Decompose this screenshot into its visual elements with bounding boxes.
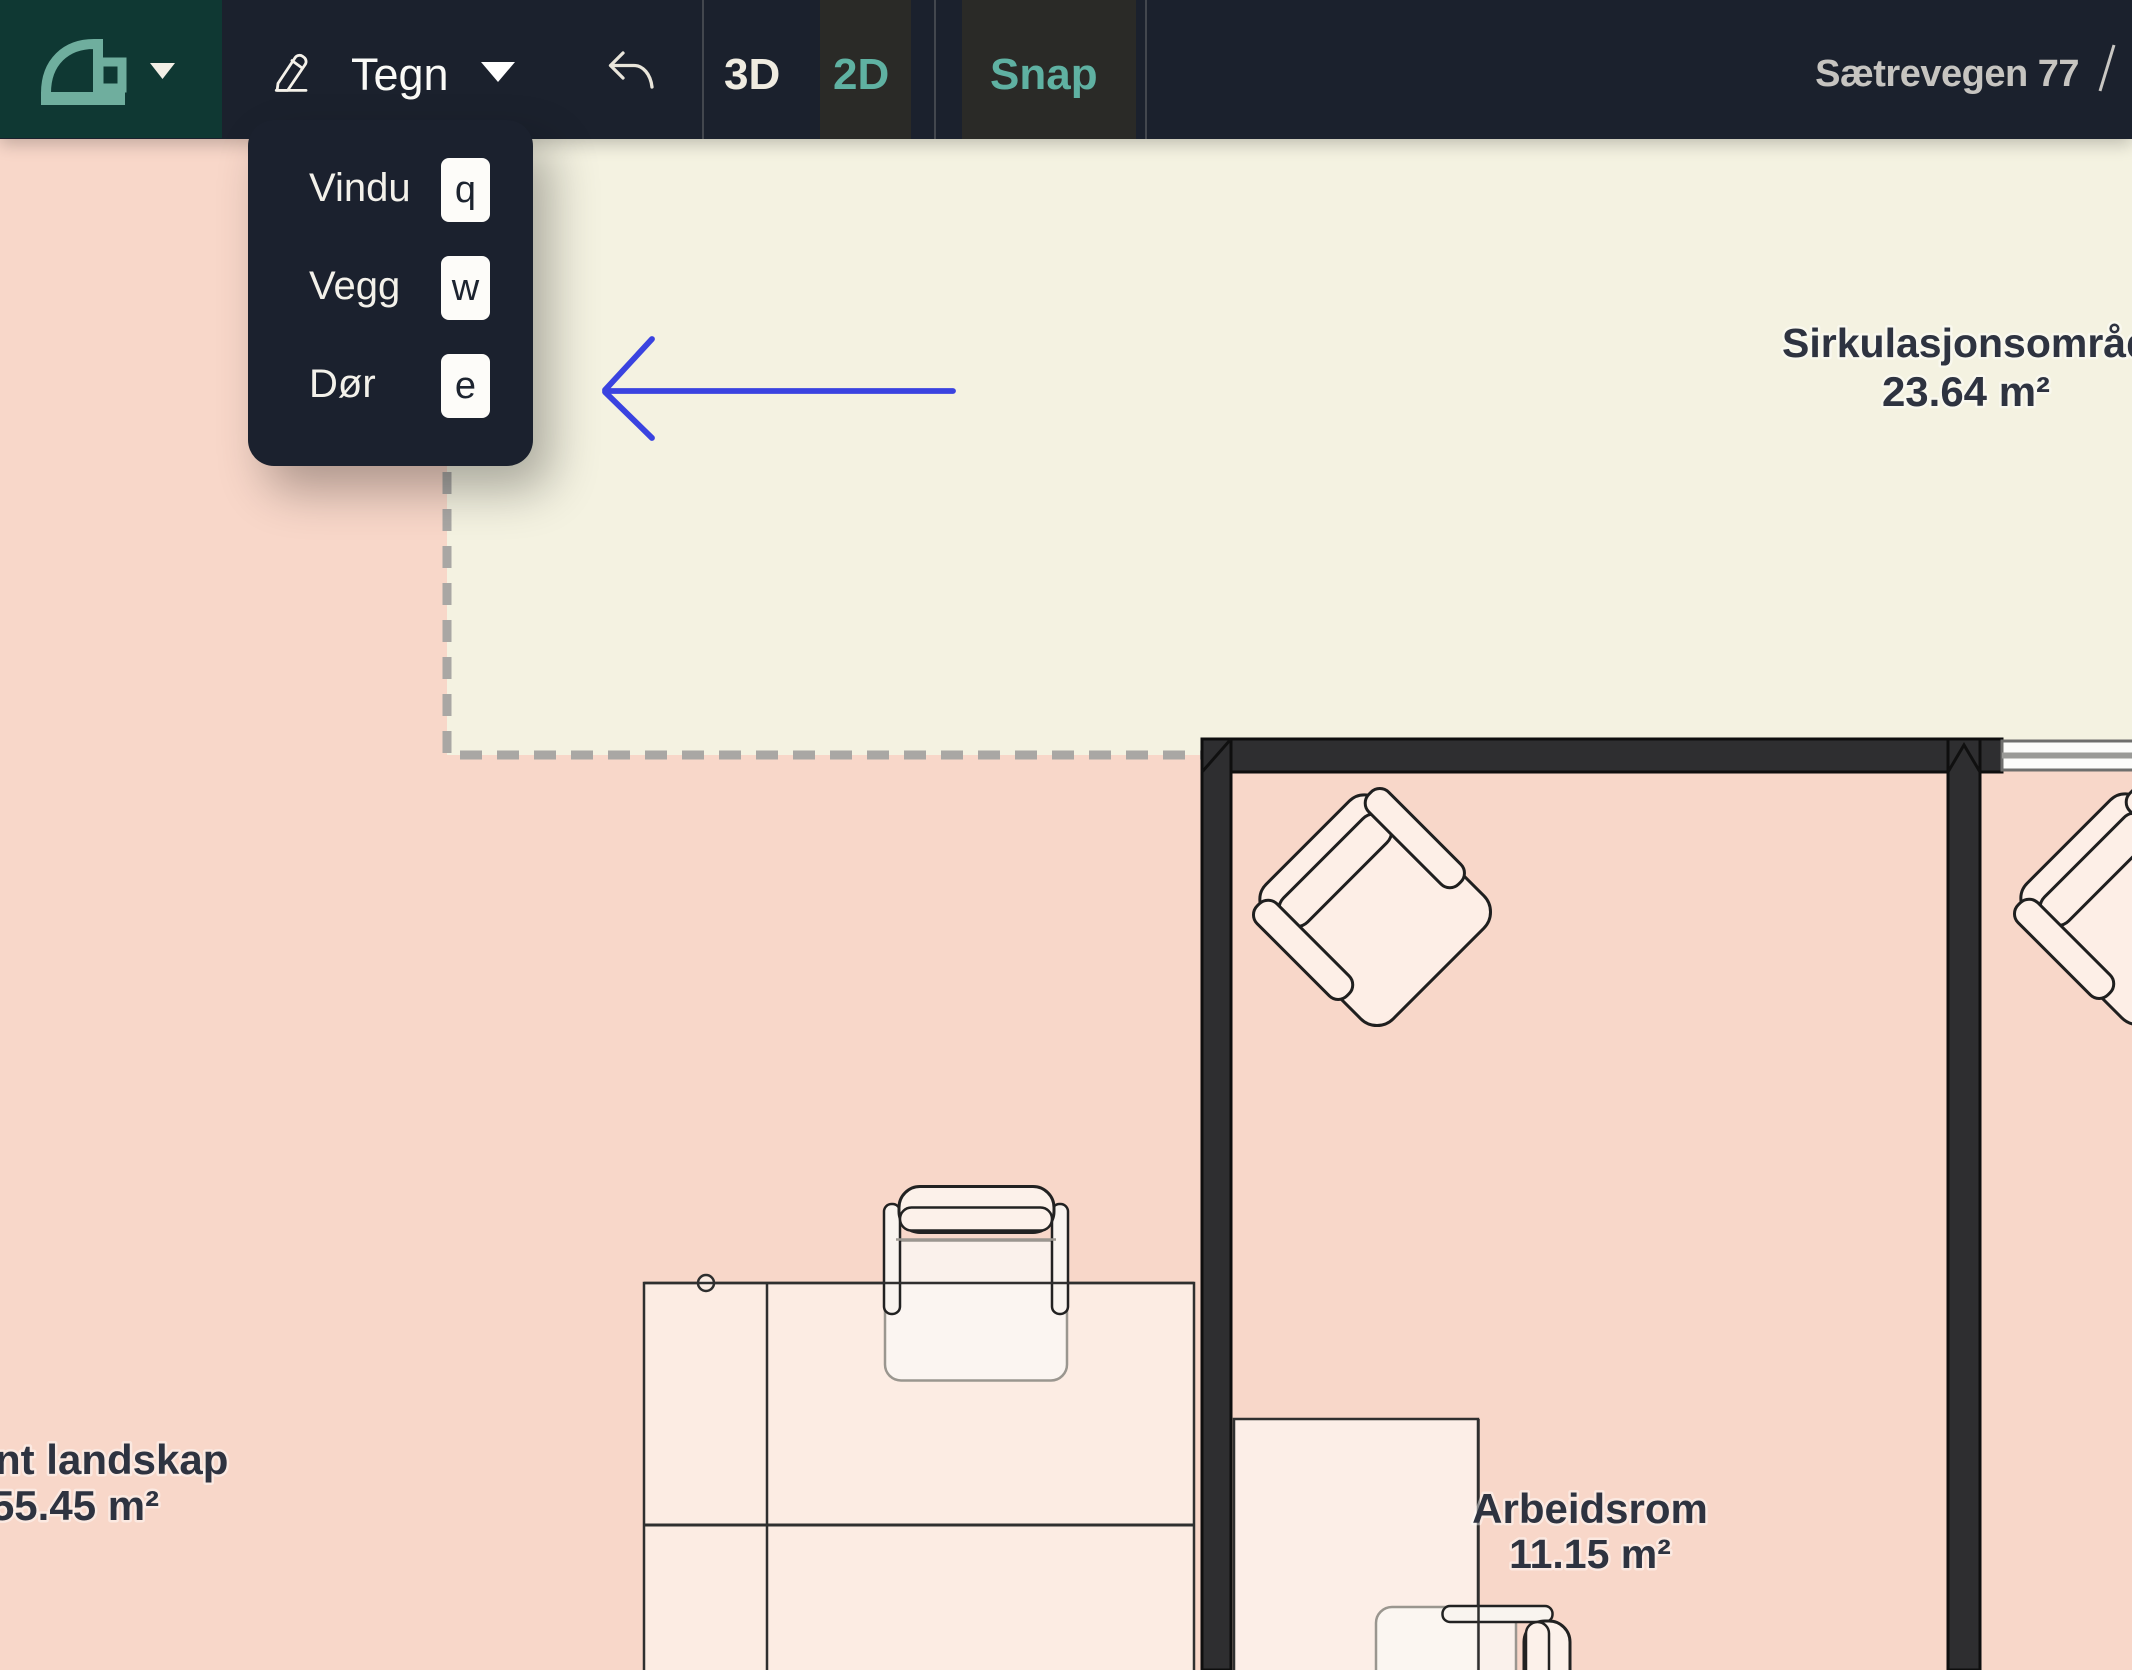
svg-text:23.64 m²: 23.64 m² xyxy=(1882,368,2050,415)
svg-text:Sirkulasjonsområde: Sirkulasjonsområde xyxy=(1782,320,2132,366)
svg-text:Arbeidsrom: Arbeidsrom xyxy=(1472,1485,1708,1532)
svg-text:55.45 m²: 55.45 m² xyxy=(0,1482,159,1529)
svg-text:Åpent landskap: Åpent landskap xyxy=(0,1436,228,1483)
svg-text:11.15 m²: 11.15 m² xyxy=(1509,1531,1671,1577)
